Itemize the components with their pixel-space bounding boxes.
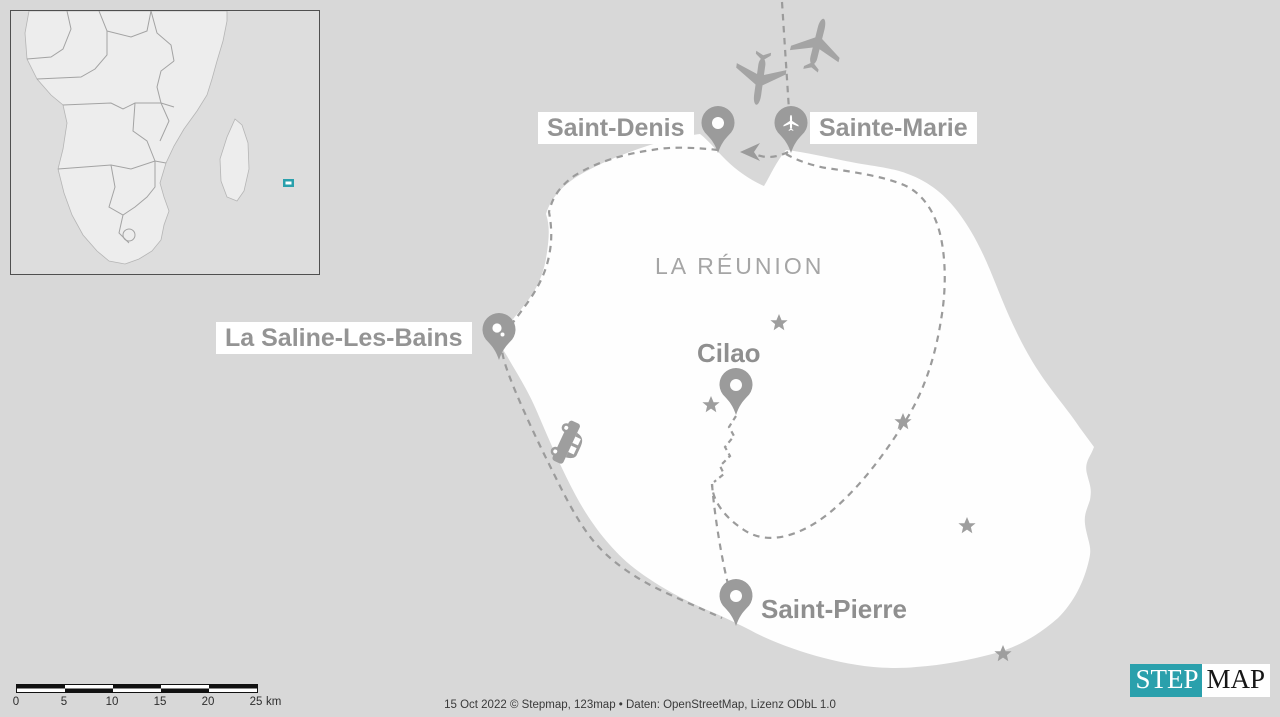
africa-inset-svg [11, 11, 319, 274]
africa-landmass [25, 11, 227, 264]
scale-tick: 0 [13, 696, 19, 708]
scale-bar-segments [16, 684, 258, 693]
map-canvas: LA RÉUNION Saint-Denis Sainte-Marie La S… [0, 0, 1280, 717]
route-flight-approach [782, 2, 789, 110]
scale-unit: km [266, 696, 281, 708]
scale-tick: 5 [61, 696, 67, 708]
attribution-text: 15 Oct 2022 © Stepmap, 123map • Daten: O… [444, 699, 836, 711]
label-cilao: Cilao [697, 340, 761, 367]
scale-tick: 25 [250, 696, 263, 708]
scale-tick: 15 [154, 696, 167, 708]
scale-bar: 0 5 10 15 20 25 km [16, 684, 316, 714]
overview-inset-map [10, 10, 320, 275]
label-saint-pierre: Saint-Pierre [761, 596, 907, 623]
label-sainte-marie: Sainte-Marie [810, 112, 977, 144]
label-saint-denis: Saint-Denis [538, 112, 694, 144]
airplane-arriving-icon [731, 48, 788, 108]
airplane-departing-icon [786, 13, 847, 77]
label-la-saline-les-bains: La Saline-Les-Bains [216, 322, 472, 354]
logo-map-part: MAP [1202, 664, 1270, 697]
stepmap-logo[interactable]: STEP MAP [1130, 664, 1270, 697]
marker-sainte-marie[interactable] [775, 106, 808, 153]
scale-tick: 20 [202, 696, 215, 708]
region-label: LA RÉUNION [655, 253, 824, 280]
route-arrowhead [740, 143, 760, 161]
logo-step-part: STEP [1130, 664, 1202, 697]
reunion-highlight-box [283, 179, 294, 187]
reunion-island-shape [500, 134, 1094, 668]
scale-tick: 10 [106, 696, 119, 708]
madagascar-shape [220, 119, 249, 201]
